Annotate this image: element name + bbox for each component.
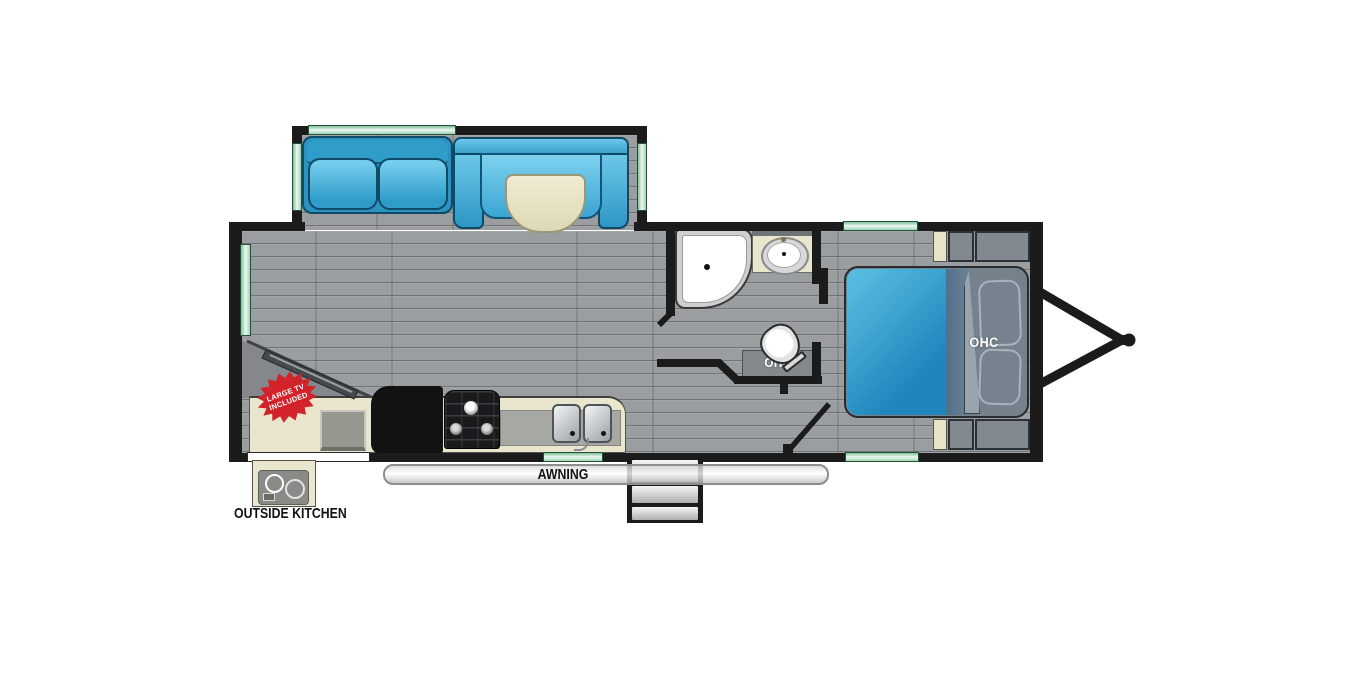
- entry-door-hinge: [783, 444, 793, 454]
- burner-icon: [265, 474, 284, 493]
- outside-cooktop-panel: [258, 470, 309, 505]
- bath-door-stub: [659, 313, 671, 325]
- entry-door-swing: [789, 404, 829, 450]
- outside-kitchen-box: [252, 460, 316, 507]
- floorplan: OHC OHC: [0, 0, 1366, 683]
- awning-bar: AWNING: [383, 464, 829, 485]
- burner-icon: [285, 479, 305, 499]
- step-tread: [632, 486, 698, 503]
- step-tread: [632, 507, 698, 520]
- overlay-lines: [0, 0, 1366, 683]
- outside-kitchen-label: OUTSIDE KITCHEN: [234, 505, 347, 522]
- control-panel-icon: [263, 493, 275, 501]
- bath-wall-diagonal: [718, 362, 737, 380]
- awning-label: AWNING: [521, 467, 606, 483]
